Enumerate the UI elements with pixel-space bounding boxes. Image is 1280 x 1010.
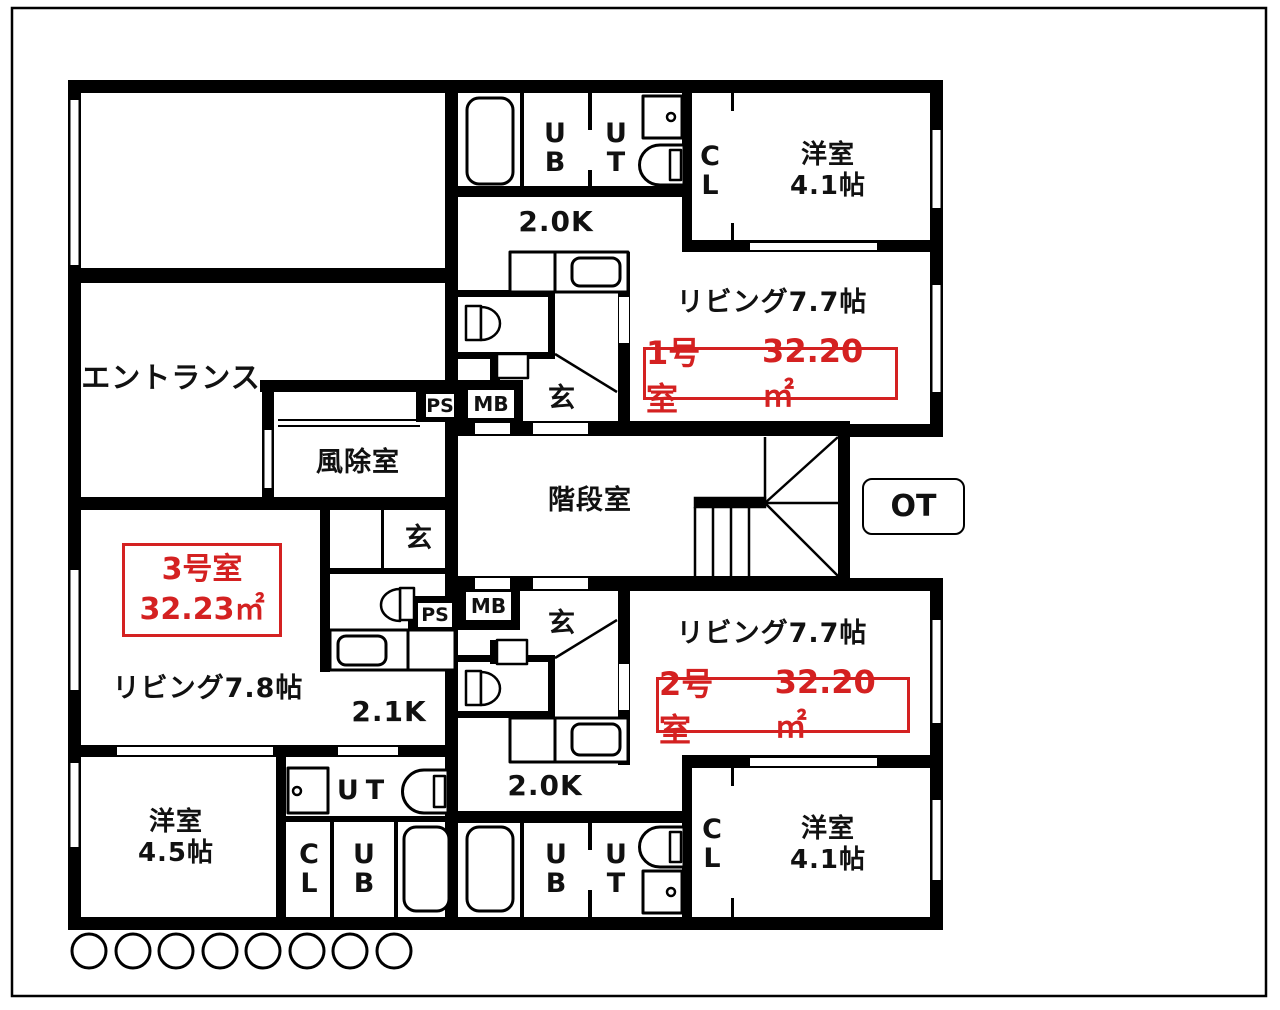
unit1-area: 32.20㎡ <box>762 332 895 416</box>
unit2-area: 32.20㎡ <box>775 663 907 747</box>
living-label-unit3: リビング7.8帖 <box>113 673 304 705</box>
unit3-area: 32.23㎡ <box>140 590 265 631</box>
ub-label-unit1: UB <box>541 119 569 177</box>
cl-label-unit2: CL <box>698 815 726 873</box>
ub-label-unit2: UB <box>542 840 570 898</box>
ub-label-unit3: UB <box>350 840 378 898</box>
sink-icon-unit3 <box>403 770 449 813</box>
unit3-tag: 3号室 32.23㎡ <box>122 543 282 637</box>
kitchen-label-unit1: 2.0K <box>518 205 593 239</box>
shoe-cabinet-unit1 <box>497 354 528 378</box>
sink-icon-unit2 <box>640 827 685 867</box>
washbasin-icon-unit2 <box>643 871 682 913</box>
windbreak-room-label: 風除室 <box>316 447 400 479</box>
ps-box-unit3: PS <box>416 601 454 629</box>
bathtub-icon-unit1 <box>467 98 513 184</box>
unit2-name: 2号室 <box>659 659 745 751</box>
bedroom-label-unit3: 洋室 4.5帖 <box>138 807 214 869</box>
kitchen-counter-unit2 <box>510 718 628 762</box>
entrance-label: エントランス <box>81 361 260 396</box>
ut-label-unit1: UT <box>602 119 630 177</box>
living-label-unit2: リビング7.7帖 <box>677 618 868 650</box>
genkan-label-unit2: 玄 <box>548 608 576 640</box>
kitchen-counter-unit3 <box>330 630 455 670</box>
floor-plan: エントランス 風除室 階段室 玄 玄 玄 2.0K 2.0K 2.1K リビング… <box>0 0 1280 1010</box>
stairwell-label: 階段室 <box>548 485 632 517</box>
kitchen-counter-unit1 <box>510 252 628 292</box>
toilet-icon-unit2 <box>466 671 500 705</box>
cl-label-unit1: CL <box>696 142 724 200</box>
ut-label-unit3: UT <box>337 775 391 807</box>
bathtub-icon-unit2 <box>467 827 513 911</box>
toilet-icon-unit3 <box>381 588 414 621</box>
washbasin-icon-unit1 <box>643 96 682 138</box>
genkan-label-unit3: 玄 <box>405 523 433 555</box>
bedroom-label-unit1: 洋室 4.1帖 <box>790 140 866 202</box>
kitchen-label-unit2: 2.0K <box>507 769 582 803</box>
ut-label-unit2: UT <box>602 840 630 898</box>
unit1-name: 1号室 <box>646 328 732 420</box>
ps-box-windbreak: PS <box>424 392 456 419</box>
genkan-label-unit1: 玄 <box>548 383 576 415</box>
walls <box>68 80 943 930</box>
washbasin-icon-unit3 <box>288 768 328 813</box>
mb-box-unit1: MB <box>466 388 516 420</box>
kitchen-label-unit3: 2.1K <box>351 695 426 729</box>
living-label-unit1: リビング7.7帖 <box>677 287 868 319</box>
toilet-icon-unit1 <box>466 306 500 340</box>
cl-label-unit3: CL <box>295 840 323 898</box>
unit2-tag: 2号室 32.20㎡ <box>656 677 910 733</box>
sink-icon-unit1 <box>640 145 685 185</box>
stairs-icon <box>695 437 838 576</box>
ot-box: OT <box>862 478 965 535</box>
bedroom-label-unit2: 洋室 4.1帖 <box>790 814 866 876</box>
mb-box-unit2: MB <box>464 590 513 622</box>
parking-circles <box>72 934 411 968</box>
bathtub-icon-unit3 <box>404 827 449 911</box>
shoe-cabinet-unit2 <box>497 640 527 664</box>
unit3-name: 3号室 <box>162 550 243 591</box>
unit1-tag: 1号室 32.20㎡ <box>643 347 898 400</box>
